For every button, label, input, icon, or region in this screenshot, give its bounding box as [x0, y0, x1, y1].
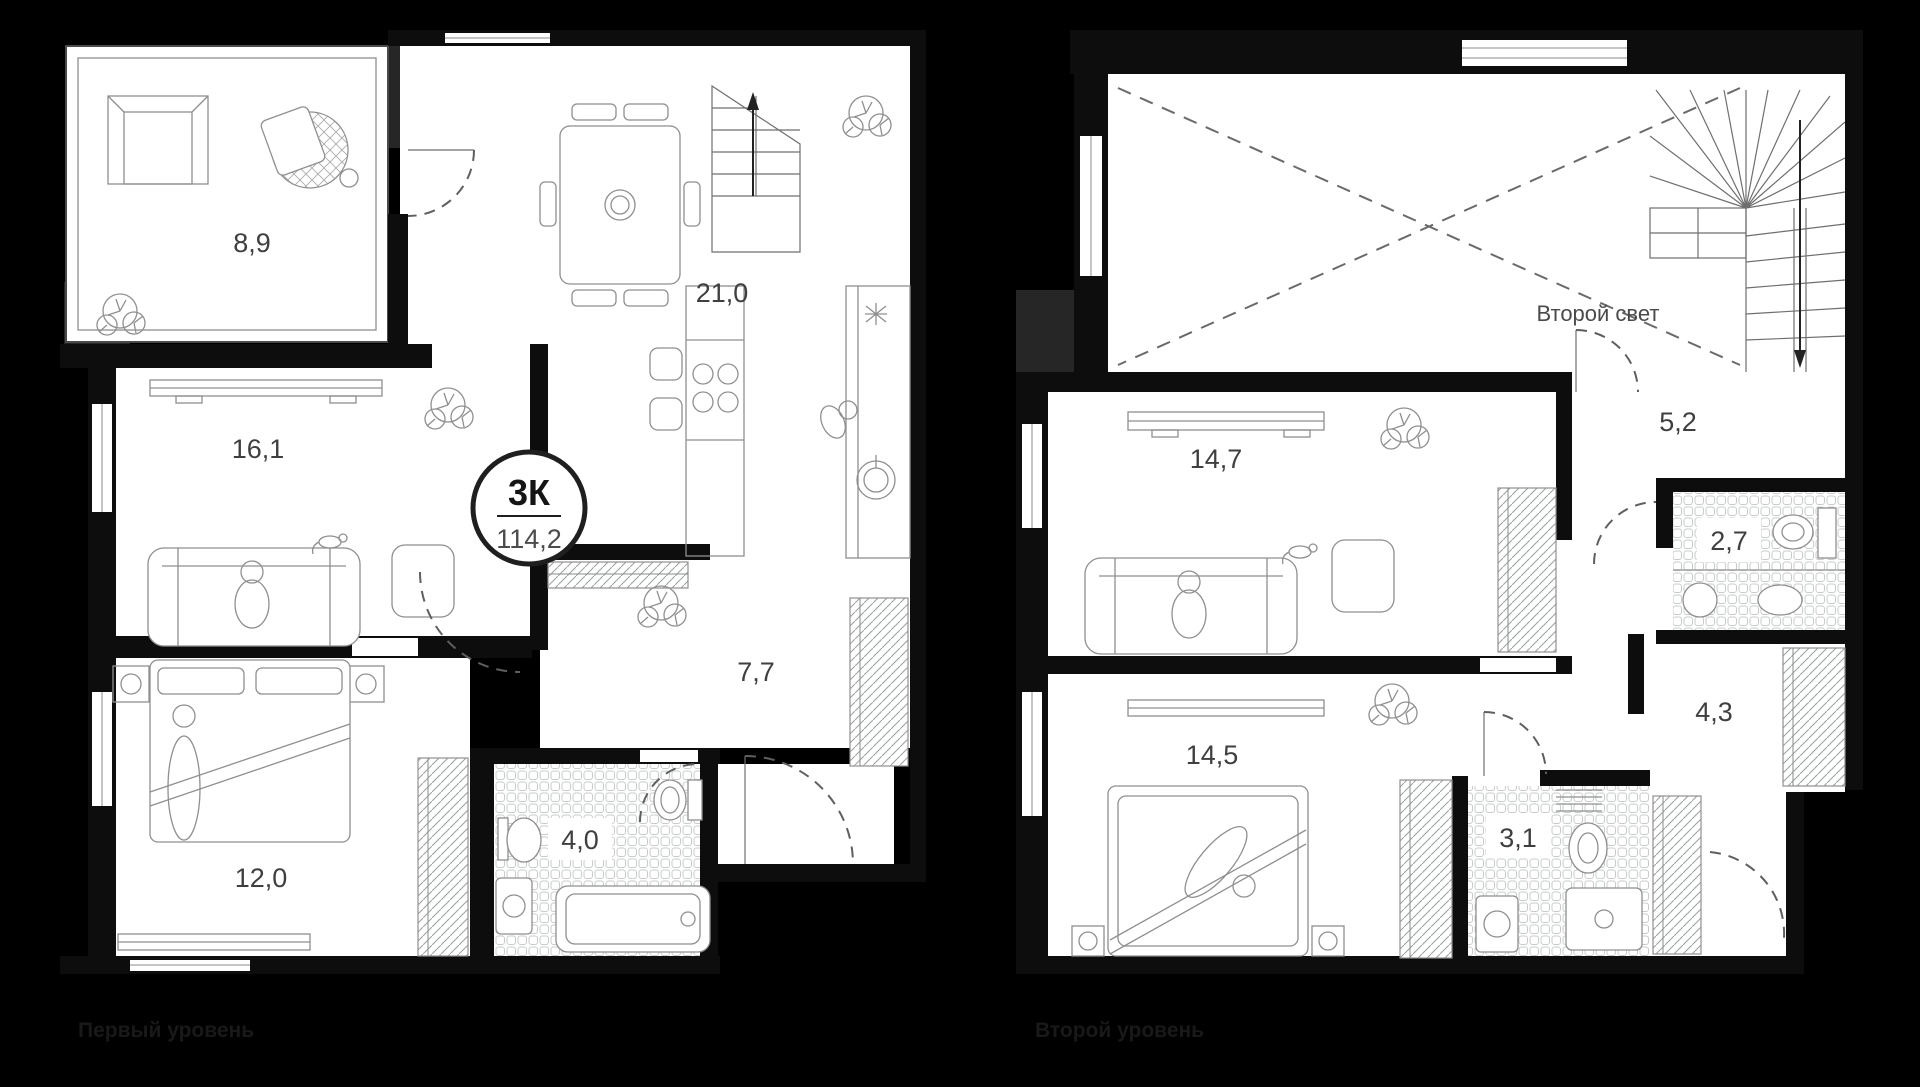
washing-machine-icon	[1476, 896, 1518, 952]
area-label-loggia: 8,9	[233, 228, 271, 258]
bathtub-icon	[556, 886, 710, 952]
armchair-icon	[1332, 540, 1394, 612]
area-label-living: 16,1	[232, 434, 285, 464]
room-loggia	[66, 46, 388, 342]
dining-table-icon	[540, 104, 700, 306]
area-label-bedroom-2: 14,5	[1186, 740, 1239, 770]
area-label-stair-hall: 5,2	[1659, 407, 1697, 437]
toilet-icon	[1569, 823, 1607, 873]
void-and-stairs	[1108, 72, 1845, 372]
area-label-wc: 2,7	[1710, 526, 1748, 556]
bed-icon	[1108, 786, 1308, 956]
area-label-bathroom-2: 3,1	[1499, 823, 1537, 853]
wardrobe-icon	[1653, 796, 1701, 954]
second-level-plan: Второй свет 14,7 5,2 2,7 4,3 14,5 3,1	[1016, 30, 1863, 974]
area-label-hallway-2: 4,3	[1695, 697, 1733, 727]
wardrobe-icon	[850, 598, 908, 766]
bed-icon	[150, 660, 350, 842]
first-level-plan: 3К 114,2 8,9 21,0 16,1 7,7 12,0 4,0	[60, 30, 926, 974]
area-label-bedroom: 12,0	[235, 863, 288, 893]
apartment-badge: 3К 114,2	[473, 452, 585, 564]
area-label-hallway: 7,7	[737, 657, 775, 687]
second-level-caption: Второй уровень	[1035, 1019, 1204, 1042]
toilet-icon	[654, 780, 702, 820]
badge-rooms-label: 3К	[508, 472, 551, 513]
void-label: Второй свет	[1537, 301, 1660, 326]
washing-machine-icon	[496, 878, 532, 934]
wardrobe-icon	[1783, 648, 1845, 786]
first-level-caption: Первый уровень	[78, 1019, 254, 1042]
wardrobe-icon	[1400, 780, 1452, 958]
wardrobe-icon	[418, 758, 468, 956]
sofa-icon	[1085, 558, 1297, 654]
shower-icon	[1566, 888, 1642, 950]
sofa-icon	[148, 548, 360, 646]
sink-icon	[498, 818, 541, 862]
wardrobe-icon	[1498, 488, 1556, 652]
area-label-bathroom: 4,0	[561, 825, 599, 855]
area-label-lounge: 14,7	[1190, 444, 1243, 474]
wardrobe-icon	[548, 562, 688, 588]
floor-plan-canvas: 3К 114,2 8,9 21,0 16,1 7,7 12,0 4,0	[0, 0, 1920, 1087]
armchair-icon	[392, 545, 454, 617]
area-label-kitchen-dining: 21,0	[696, 278, 749, 308]
badge-area-label: 114,2	[496, 524, 562, 554]
